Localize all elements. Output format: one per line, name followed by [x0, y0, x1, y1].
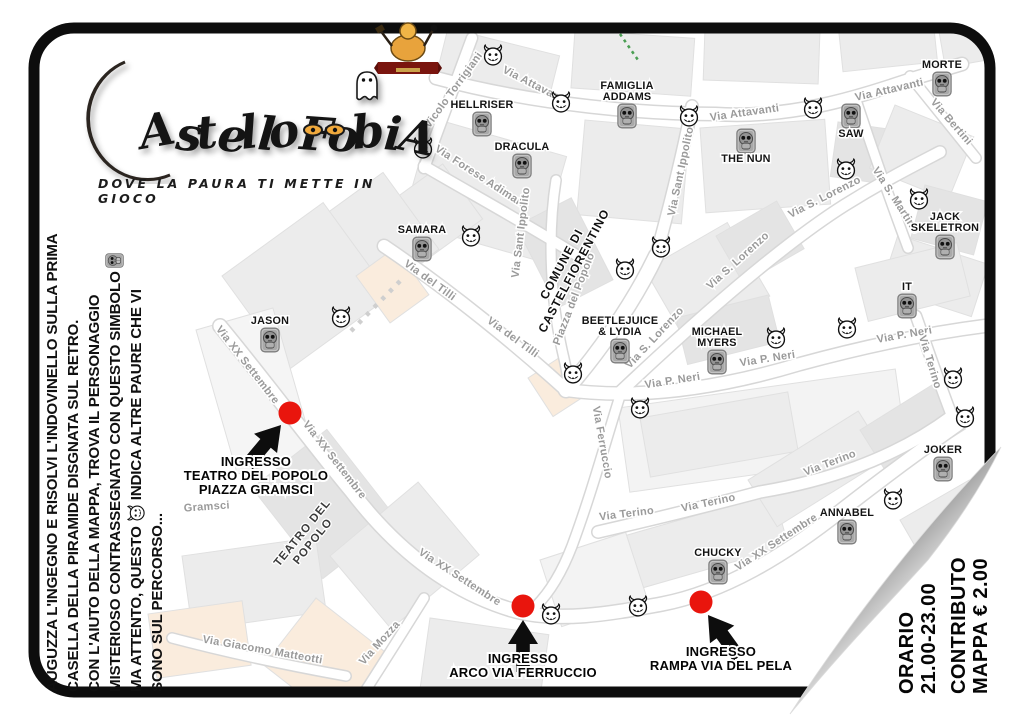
character-label: CHUCKY: [694, 547, 742, 559]
contributo-info: CONTRIBUTO MAPPA € 2.00: [949, 534, 992, 694]
entrance-dot: [690, 591, 713, 614]
skull-icon: [513, 154, 531, 178]
instruction-line: CON L'AIUTO DELLA MAPPA, TROVA IL PERSON…: [84, 187, 105, 692]
devil-icon: [944, 368, 961, 388]
devil-icon: [838, 318, 855, 338]
skull-icon: [737, 129, 755, 153]
skull-icon: [261, 328, 279, 352]
skull-icon: [473, 112, 491, 136]
skull-icon: [933, 72, 951, 96]
devil-icon: [631, 398, 648, 418]
devil-icon: [910, 189, 927, 209]
character-label: ANNABEL: [820, 507, 874, 519]
skull-icon: [842, 104, 860, 128]
entrance-dot: [512, 595, 535, 618]
devil-icon: [564, 363, 581, 383]
devil-icon: [542, 604, 559, 624]
instruction-line: CASELLA DELLA PIRAMIDE DISGNATA SUL RETR…: [63, 187, 84, 692]
devil-icon: [767, 328, 784, 348]
devil-icon: [956, 407, 973, 427]
contributo-value: MAPPA € 2.00: [971, 534, 993, 694]
skull-icon: [936, 235, 954, 259]
instruction-line: MA ATTENTO, QUESTOINDICA ALTRE PAURE CHE…: [126, 187, 147, 692]
devil-icon: [680, 106, 697, 126]
character-label: SAW: [838, 128, 864, 140]
character-label: IT: [902, 281, 912, 293]
devil-icon: [462, 226, 479, 246]
skull-icon: [709, 560, 727, 584]
skull-icon: [618, 104, 636, 128]
entrance-dot: [279, 402, 302, 425]
instructions-panel: AUGUZZA L'INGEGNO E RISOLVI L'INDOVINELL…: [42, 187, 168, 692]
instruction-line: SONO SUL PERCORSO...: [147, 187, 168, 692]
crest-icon: [372, 18, 444, 82]
character-label: JASON: [251, 315, 289, 327]
devil-icon: [884, 489, 901, 509]
skull-icon: [413, 237, 431, 261]
character-label: SAMARA: [398, 224, 447, 236]
devil-icon: [127, 503, 145, 523]
contributo-label: CONTRIBUTO: [949, 534, 971, 694]
character-label: HELLRISER: [451, 99, 514, 111]
devil-icon: [629, 596, 646, 616]
character-saw: SAW: [838, 104, 864, 140]
devil-icon: [484, 45, 501, 65]
devil-icon: [616, 259, 633, 279]
devil-icon: [332, 307, 349, 327]
skull-icon: [708, 350, 726, 374]
character-label: FAMIGLIAADDAMS: [600, 80, 653, 103]
instruction-line: AUGUZZA L'INGEGNO E RISOLVI L'INDOVINELL…: [42, 187, 63, 692]
devil-icon: [804, 98, 821, 118]
devil-icon: [652, 237, 669, 257]
castellofobia-map-page: Vicolo TorrigianiVia AttavantiVia Attava…: [0, 0, 1024, 724]
instruction-line: MISTERIOSO CONTRASSEGNATO CON QUESTO SIM…: [105, 187, 126, 692]
character-label: MORTE: [922, 59, 962, 71]
orario-value: 21.00-23.00: [919, 534, 941, 694]
skull-icon: [105, 253, 124, 268]
skull-icon: [611, 339, 629, 363]
character-label: DRACULA: [495, 141, 550, 153]
orario-info: ORARIO 21.00-23.00: [897, 534, 940, 694]
character-label: MICHAELMYERS: [692, 326, 743, 349]
orario-label: ORARIO: [897, 534, 919, 694]
devil-icon: [552, 92, 569, 112]
character-label: JOKER: [924, 444, 962, 456]
skull-icon: [934, 457, 952, 481]
character-label: THE NUN: [721, 153, 770, 165]
logo-word: AstelloFobiA: [131, 101, 440, 167]
skull-icon: [898, 294, 916, 318]
skull-icon: [838, 520, 856, 544]
devil-icon: [837, 159, 854, 179]
